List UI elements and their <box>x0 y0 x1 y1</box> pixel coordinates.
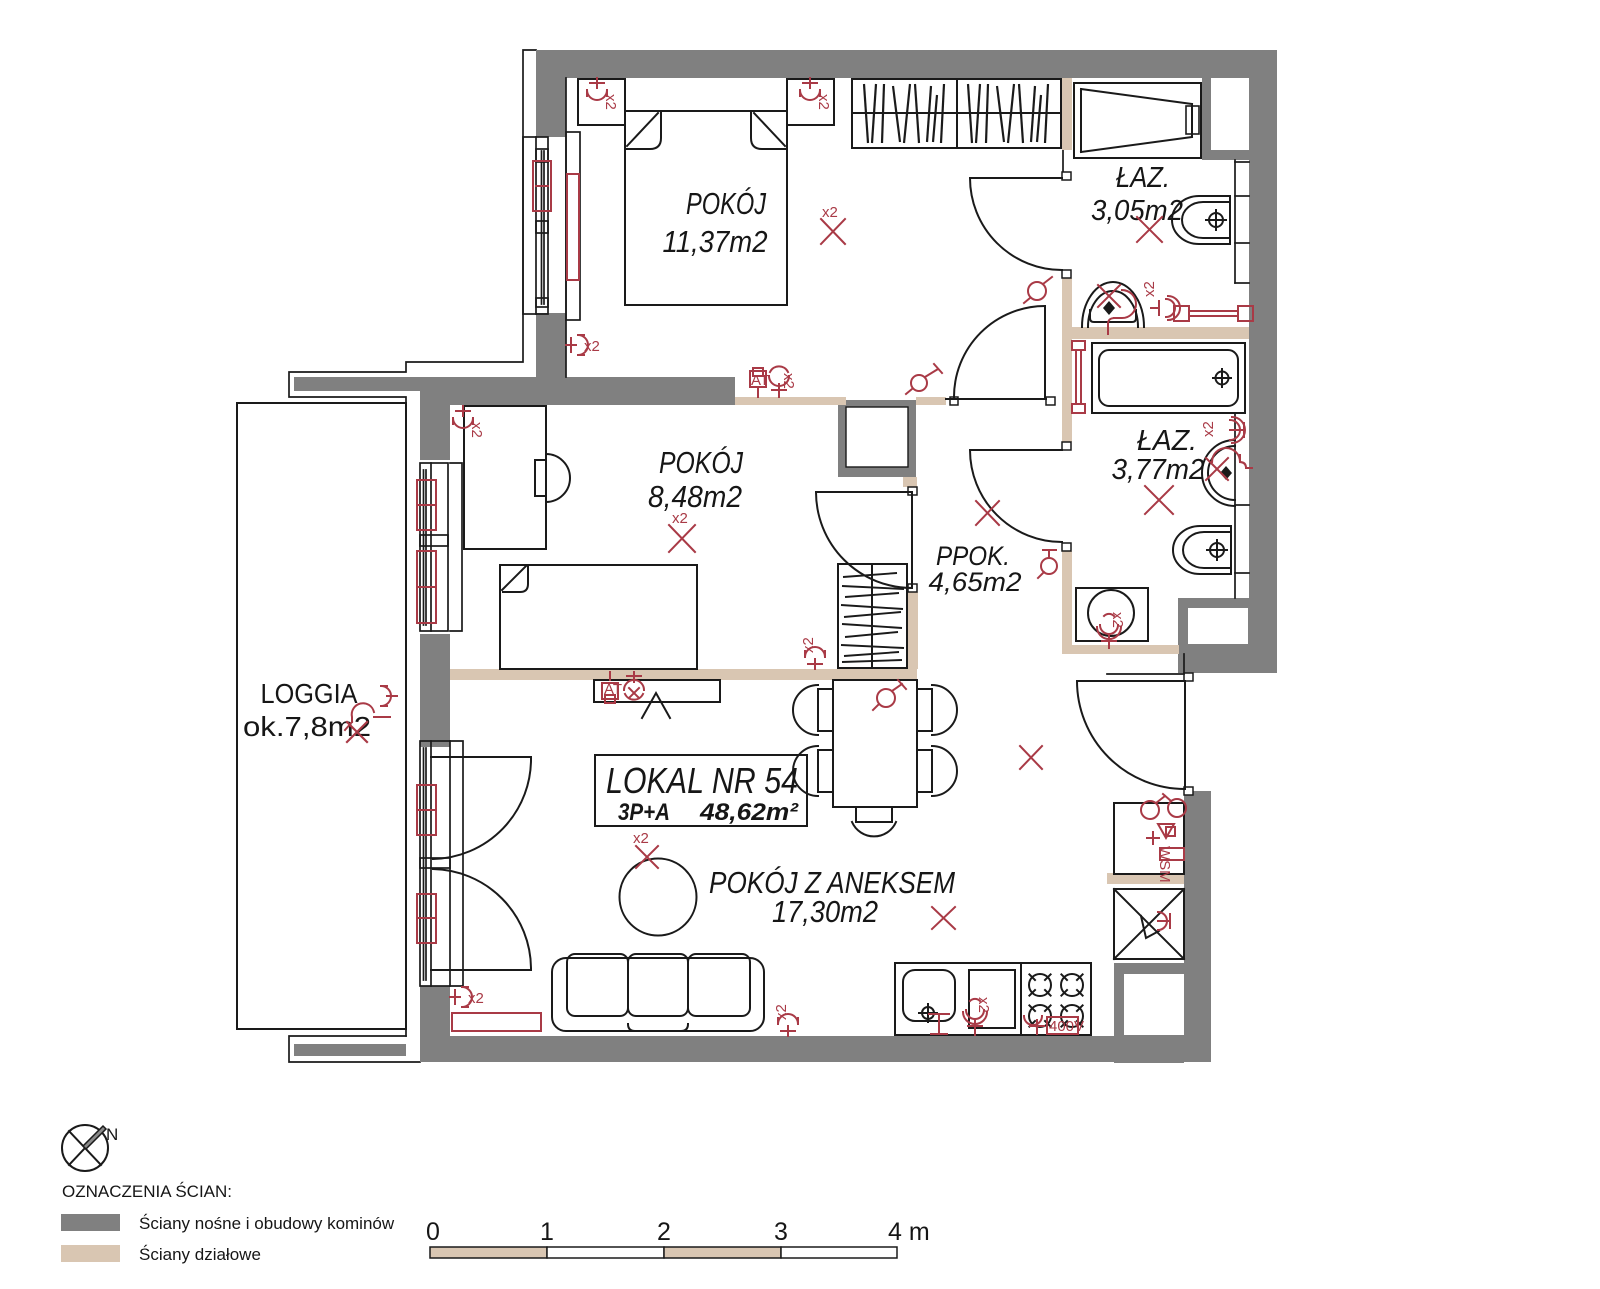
svg-text:x2: x2 <box>468 422 485 438</box>
svg-text:400V: 400V <box>1049 1018 1084 1035</box>
svg-text:x2: x2 <box>584 338 600 355</box>
svg-text:ŁAZ.: ŁAZ. <box>1116 162 1170 194</box>
svg-text:1: 1 <box>540 1218 554 1246</box>
svg-text:Ściany działowe: Ściany działowe <box>139 1245 261 1264</box>
svg-text:x2: x2 <box>1200 421 1217 437</box>
svg-text:x2: x2 <box>773 1004 790 1020</box>
svg-text:4,65m2: 4,65m2 <box>929 567 1022 597</box>
svg-text:N: N <box>106 1125 118 1144</box>
svg-text:3,77m2: 3,77m2 <box>1112 454 1205 486</box>
svg-text:2: 2 <box>657 1218 671 1246</box>
svg-text:LOGGIA: LOGGIA <box>261 678 358 709</box>
svg-text:8,48m2: 8,48m2 <box>648 479 742 514</box>
svg-text:x2: x2 <box>975 997 992 1013</box>
svg-text:LOKAL NR 54: LOKAL NR 54 <box>606 760 798 801</box>
svg-text:x2: x2 <box>822 204 838 221</box>
svg-text:3: 3 <box>774 1218 788 1246</box>
svg-text:AT: AT <box>751 372 769 389</box>
svg-text:0: 0 <box>426 1218 440 1246</box>
svg-text:x2: x2 <box>468 990 484 1007</box>
svg-text:ŁAZ.: ŁAZ. <box>1137 425 1197 457</box>
svg-text:x2: x2 <box>602 94 619 110</box>
svg-text:Ściany nośne i obudowy kominów: Ściany nośne i obudowy kominów <box>139 1214 395 1233</box>
svg-text:x2: x2 <box>815 94 832 110</box>
svg-text:WSM: WSM <box>1156 846 1173 883</box>
svg-text:OZNACZENIA ŚCIAN:: OZNACZENIA ŚCIAN: <box>62 1182 232 1201</box>
svg-text:x2: x2 <box>1141 281 1158 297</box>
svg-text:AT: AT <box>604 681 622 698</box>
svg-text:11,37m2: 11,37m2 <box>663 224 768 259</box>
svg-text:x2: x2 <box>633 830 649 847</box>
svg-text:4 m: 4 m <box>888 1218 930 1246</box>
svg-text:x2: x2 <box>1109 612 1126 628</box>
svg-text:3,05m2: 3,05m2 <box>1091 195 1183 227</box>
svg-text:3P+A: 3P+A <box>618 799 670 826</box>
svg-text:48,62m²: 48,62m² <box>699 799 799 826</box>
svg-text:x2: x2 <box>672 510 688 527</box>
svg-text:POKÓJ: POKÓJ <box>686 186 766 221</box>
svg-text:POKÓJ: POKÓJ <box>659 445 743 480</box>
svg-text:17,30m2: 17,30m2 <box>772 894 878 929</box>
svg-text:x2: x2 <box>780 373 797 389</box>
svg-text:x2: x2 <box>800 637 817 653</box>
